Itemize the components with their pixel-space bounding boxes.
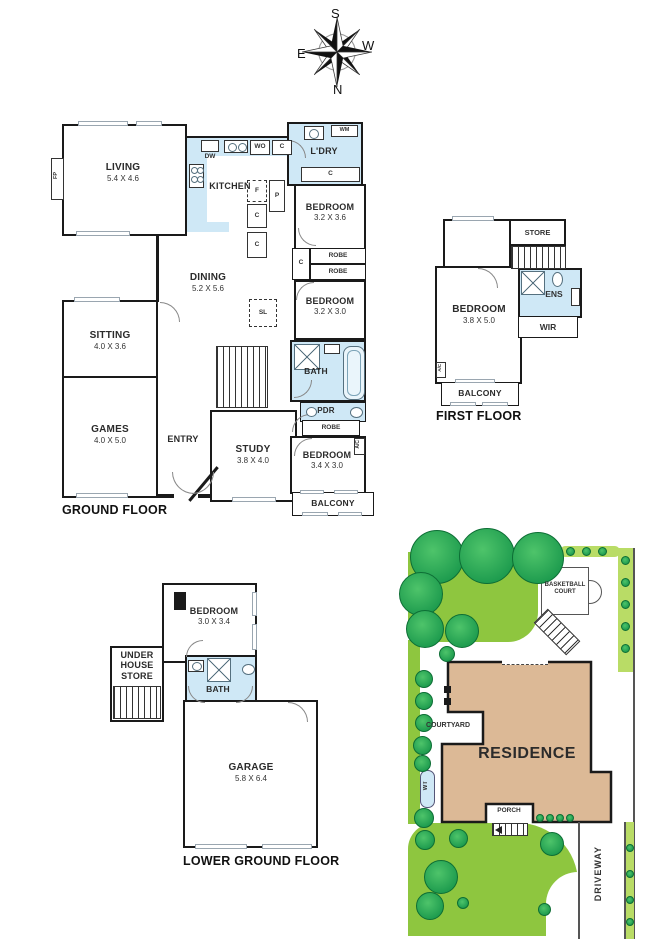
residence-dashed-opening bbox=[502, 658, 548, 665]
window bbox=[450, 402, 476, 406]
robe-label: ROBE bbox=[310, 269, 366, 276]
fireplace-label: FP bbox=[54, 172, 60, 179]
lg-bath-label: BATH bbox=[196, 684, 240, 694]
vanity bbox=[324, 344, 340, 354]
ff-bedroom-dims: 3.8 X 5.0 bbox=[443, 316, 515, 326]
lg-bedroom-name: BEDROOM bbox=[178, 606, 250, 617]
first-floor-title: FIRST FLOOR bbox=[436, 409, 522, 423]
dining-dims: 5.2 X 5.6 bbox=[175, 284, 241, 294]
window bbox=[76, 231, 130, 236]
study-dims: 3.8 X 4.0 bbox=[220, 456, 286, 466]
lg-basin-bowl bbox=[192, 662, 202, 671]
sink-bowl bbox=[238, 143, 247, 152]
lg-store-label: UNDER HOUSE STORE bbox=[112, 650, 162, 681]
dining-label: DINING 5.2 X 5.6 bbox=[175, 272, 241, 294]
ff-bedroom-name: BEDROOM bbox=[443, 304, 515, 316]
window bbox=[78, 121, 128, 126]
wall bbox=[198, 494, 212, 498]
window bbox=[252, 592, 257, 616]
window bbox=[232, 497, 276, 502]
bush bbox=[626, 918, 634, 926]
bush bbox=[414, 808, 434, 828]
pdr-name: PDR bbox=[308, 406, 344, 416]
washing-machine-label: WM bbox=[331, 128, 358, 134]
entry-door-arc bbox=[172, 472, 194, 494]
ens-toilet-icon bbox=[552, 272, 563, 287]
living-name: LIVING bbox=[90, 162, 156, 174]
basketball-court-label: BASKETBALL COURT bbox=[543, 582, 587, 596]
cupboard-label: C bbox=[247, 242, 267, 249]
bush bbox=[582, 547, 591, 556]
lg-shower bbox=[207, 658, 231, 682]
window bbox=[262, 844, 312, 849]
dishwasher-label: DW bbox=[200, 154, 220, 161]
living-label: LIVING 5.4 X 4.6 bbox=[90, 162, 156, 184]
games-name: GAMES bbox=[78, 424, 142, 436]
compass-north: N bbox=[333, 82, 342, 97]
bush bbox=[621, 556, 630, 565]
sitting-name: SITTING bbox=[78, 330, 142, 342]
compass-west: W bbox=[362, 38, 374, 53]
tree bbox=[406, 610, 444, 648]
bedroom2-name: BEDROOM bbox=[296, 296, 364, 307]
bush bbox=[536, 814, 544, 822]
entry-label: ENTRY bbox=[160, 434, 206, 445]
bedroom2-dims: 3.2 X 3.0 bbox=[296, 307, 364, 317]
trough-bowl bbox=[309, 129, 319, 139]
bush bbox=[621, 644, 630, 653]
floorplan-page: { "compass": {"top": "S", "right": "W", … bbox=[0, 0, 664, 939]
wall bbox=[156, 234, 159, 302]
window bbox=[195, 844, 247, 849]
entry-name: ENTRY bbox=[160, 434, 206, 445]
residence-door-mark bbox=[444, 686, 451, 693]
lg-bath-name: BATH bbox=[196, 684, 240, 694]
tree bbox=[459, 528, 515, 584]
driveway-edge bbox=[578, 822, 580, 939]
driveway-label: DRIVEWAY bbox=[594, 846, 603, 901]
window bbox=[302, 512, 328, 516]
ff-aircon-label: A/C bbox=[438, 364, 443, 372]
bush bbox=[621, 600, 630, 609]
bush bbox=[556, 814, 564, 822]
aircon-label: A/C bbox=[356, 440, 361, 449]
tree bbox=[416, 892, 444, 920]
sitting-dims: 4.0 X 3.6 bbox=[78, 342, 142, 352]
bush bbox=[457, 897, 469, 909]
bathtub bbox=[343, 346, 365, 400]
tree bbox=[445, 614, 479, 648]
bush bbox=[626, 844, 634, 852]
staircase bbox=[216, 346, 268, 408]
lg-toilet-icon bbox=[242, 664, 255, 675]
bedroom1-name: BEDROOM bbox=[296, 202, 364, 213]
ff-staircase bbox=[511, 246, 566, 269]
bedroom1-dims: 3.2 X 3.6 bbox=[296, 213, 364, 223]
bedroom3-dims: 3.4 X 3.0 bbox=[292, 461, 362, 471]
bush bbox=[415, 830, 435, 850]
ens-label: ENS bbox=[538, 290, 570, 299]
courtyard-label: COURTYARD bbox=[414, 722, 482, 729]
bush bbox=[621, 622, 630, 631]
bush bbox=[566, 547, 575, 556]
window bbox=[334, 490, 358, 494]
games-dims: 4.0 X 5.0 bbox=[78, 436, 142, 446]
bedroom3-name: BEDROOM bbox=[292, 450, 362, 461]
cupboard-label: C bbox=[247, 213, 267, 220]
window bbox=[338, 512, 362, 516]
bush bbox=[538, 903, 551, 916]
study-label: STUDY 3.8 X 4.0 bbox=[220, 444, 286, 466]
lg-bedroom-dims: 3.0 X 3.4 bbox=[178, 617, 250, 627]
ground-floor-title: GROUND FLOOR bbox=[62, 503, 167, 517]
bush bbox=[449, 829, 468, 848]
door-arc bbox=[160, 302, 180, 322]
balcony-ground-label: BALCONY bbox=[296, 498, 370, 508]
water-tank-label: WT bbox=[423, 781, 429, 790]
bush bbox=[598, 547, 607, 556]
pdr-label: PDR bbox=[308, 406, 344, 416]
lg-garage-label: GARAGE 5.8 X 6.4 bbox=[216, 762, 286, 784]
bath-name: BATH bbox=[292, 366, 340, 376]
dishwasher-box bbox=[201, 140, 219, 152]
sink-bowl bbox=[228, 143, 237, 152]
bedroom1-label: BEDROOM 3.2 X 3.6 bbox=[296, 202, 364, 222]
laundry-label: L'DRY bbox=[294, 146, 354, 157]
ens-vanity bbox=[571, 288, 580, 306]
cupboard-label: C bbox=[272, 144, 292, 151]
bush bbox=[546, 814, 554, 822]
ff-bedroom-label: BEDROOM 3.8 X 5.0 bbox=[443, 304, 515, 326]
residence-door-mark bbox=[444, 698, 451, 705]
lg-store-name: UNDER HOUSE STORE bbox=[112, 650, 162, 681]
window bbox=[452, 216, 494, 221]
porch-arrow bbox=[495, 826, 502, 834]
cupboard-label: C bbox=[292, 260, 310, 267]
skylight-label: SL bbox=[254, 310, 272, 317]
cooktop-burner bbox=[197, 167, 204, 174]
laundry-name: L'DRY bbox=[294, 146, 354, 157]
pantry-label: P bbox=[269, 193, 285, 200]
games-label: GAMES 4.0 X 5.0 bbox=[78, 424, 142, 446]
store-label: STORE bbox=[509, 229, 566, 237]
lg-garage-dims: 5.8 X 6.4 bbox=[216, 774, 286, 784]
wall-oven-label: WO bbox=[250, 144, 270, 151]
window bbox=[74, 297, 120, 302]
bush bbox=[439, 646, 455, 662]
residence-label: RESIDENCE bbox=[462, 744, 592, 763]
porch-label: PORCH bbox=[486, 808, 532, 815]
balcony-name: BALCONY bbox=[296, 498, 370, 508]
bush bbox=[414, 755, 431, 772]
cupboard-label: C bbox=[301, 171, 360, 178]
wall bbox=[158, 494, 174, 498]
ff-balcony-label: BALCONY bbox=[445, 388, 515, 398]
compass-south: S bbox=[331, 6, 340, 21]
residence-name: RESIDENCE bbox=[462, 744, 592, 763]
window bbox=[252, 624, 257, 650]
window bbox=[136, 121, 162, 126]
window bbox=[455, 379, 495, 383]
bath-label: BATH bbox=[292, 366, 340, 376]
window bbox=[76, 493, 128, 498]
bush bbox=[566, 814, 574, 822]
ff-landing bbox=[443, 219, 511, 268]
tree bbox=[512, 532, 564, 584]
kitchen-bench-bottom bbox=[187, 222, 229, 232]
bush bbox=[626, 896, 634, 904]
compass-rose: S W E N bbox=[292, 6, 388, 102]
toilet-icon bbox=[350, 407, 363, 418]
bedroom3-label: BEDROOM 3.4 X 3.0 bbox=[292, 450, 362, 470]
fridge-label: F bbox=[247, 188, 267, 195]
robe-label: ROBE bbox=[310, 253, 366, 260]
wir-label: WIR bbox=[518, 323, 578, 332]
lg-bedroom-label: BEDROOM 3.0 X 3.4 bbox=[178, 606, 250, 626]
dining-name: DINING bbox=[175, 272, 241, 284]
lg-staircase bbox=[113, 686, 161, 719]
compass-east: E bbox=[297, 46, 306, 61]
bush bbox=[415, 692, 433, 710]
bush bbox=[621, 578, 630, 587]
window bbox=[300, 490, 324, 494]
ff-balcony-name: BALCONY bbox=[445, 388, 515, 398]
bush bbox=[626, 870, 634, 878]
bush bbox=[415, 670, 433, 688]
study-name: STUDY bbox=[220, 444, 286, 456]
robe-label: ROBE bbox=[302, 425, 360, 432]
lower-ground-floor-title: LOWER GROUND FLOOR bbox=[183, 854, 339, 868]
living-dims: 5.4 X 4.6 bbox=[90, 174, 156, 184]
lg-garage-name: GARAGE bbox=[216, 762, 286, 774]
sitting-label: SITTING 4.0 X 3.6 bbox=[78, 330, 142, 352]
tree bbox=[540, 832, 564, 856]
window bbox=[482, 402, 508, 406]
tree bbox=[424, 860, 458, 894]
bush bbox=[413, 736, 432, 755]
bedroom2-label: BEDROOM 3.2 X 3.0 bbox=[296, 296, 364, 316]
